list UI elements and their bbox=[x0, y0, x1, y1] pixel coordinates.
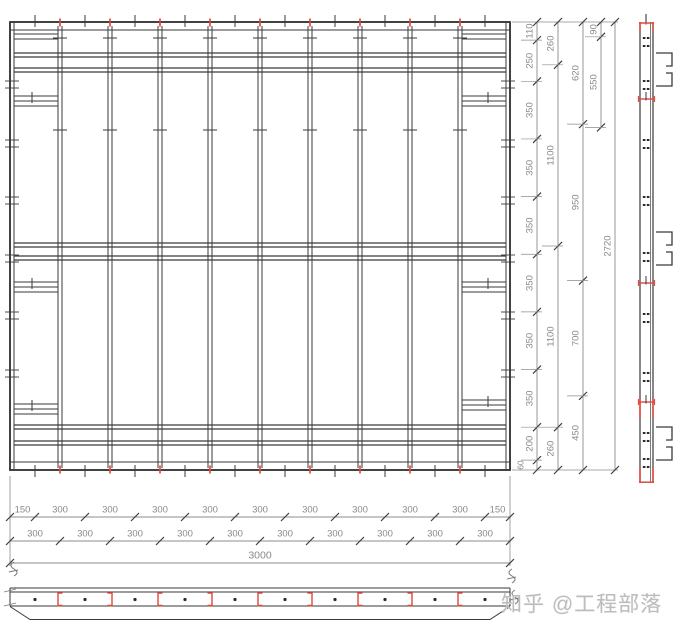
svg-text:300: 300 bbox=[252, 505, 268, 516]
svg-text:1100: 1100 bbox=[546, 145, 557, 165]
svg-text:300: 300 bbox=[152, 505, 168, 516]
svg-text:60: 60 bbox=[516, 460, 526, 470]
svg-text:90: 90 bbox=[589, 24, 600, 35]
svg-text:950: 950 bbox=[571, 194, 582, 210]
svg-text:300: 300 bbox=[477, 529, 493, 540]
svg-text:350: 350 bbox=[525, 217, 536, 233]
svg-text:350: 350 bbox=[525, 390, 536, 406]
bottom-section-strip bbox=[4, 562, 519, 620]
svg-text:300: 300 bbox=[377, 529, 393, 540]
right-dimension-chains: 1102503503503503503503502006026011001100… bbox=[512, 18, 619, 474]
plan-view bbox=[5, 15, 515, 477]
svg-text:300: 300 bbox=[52, 505, 68, 516]
svg-text:300: 300 bbox=[402, 505, 418, 516]
svg-text:110: 110 bbox=[525, 23, 536, 38]
formwork-drawing-page: 1102503503503503503503502006026011001100… bbox=[0, 0, 684, 628]
svg-text:300: 300 bbox=[27, 529, 43, 540]
svg-text:300: 300 bbox=[277, 529, 293, 540]
svg-text:3000: 3000 bbox=[248, 550, 272, 562]
side-elevation-view bbox=[639, 14, 673, 483]
svg-text:300: 300 bbox=[77, 529, 93, 540]
svg-text:350: 350 bbox=[525, 102, 536, 118]
svg-text:300: 300 bbox=[227, 529, 243, 540]
svg-text:350: 350 bbox=[525, 333, 536, 349]
svg-text:350: 350 bbox=[525, 275, 536, 291]
svg-text:300: 300 bbox=[177, 529, 193, 540]
svg-text:2720: 2720 bbox=[603, 235, 614, 256]
svg-text:150: 150 bbox=[490, 505, 506, 516]
svg-text:300: 300 bbox=[352, 505, 368, 516]
svg-text:200: 200 bbox=[525, 436, 536, 452]
svg-text:300: 300 bbox=[202, 505, 218, 516]
svg-text:300: 300 bbox=[302, 505, 318, 516]
drawing-canvas: 1102503503503503503503502006026011001100… bbox=[0, 0, 684, 628]
svg-text:250: 250 bbox=[525, 53, 536, 69]
bottom-dimension-rows: 1503003003003003003003003003001503003003… bbox=[6, 476, 514, 567]
svg-text:300: 300 bbox=[452, 505, 468, 516]
svg-text:300: 300 bbox=[102, 505, 118, 516]
svg-text:550: 550 bbox=[589, 74, 600, 90]
svg-text:300: 300 bbox=[127, 529, 143, 540]
svg-text:350: 350 bbox=[525, 160, 536, 176]
svg-text:300: 300 bbox=[327, 529, 343, 540]
svg-text:620: 620 bbox=[571, 65, 582, 81]
svg-text:260: 260 bbox=[546, 441, 557, 457]
svg-text:150: 150 bbox=[15, 505, 31, 516]
svg-text:700: 700 bbox=[571, 330, 582, 346]
svg-text:450: 450 bbox=[571, 425, 582, 441]
watermark: 知乎 @工程部落 bbox=[501, 588, 662, 618]
svg-text:1100: 1100 bbox=[546, 326, 557, 346]
svg-text:300: 300 bbox=[427, 529, 443, 540]
svg-text:260: 260 bbox=[546, 35, 557, 51]
